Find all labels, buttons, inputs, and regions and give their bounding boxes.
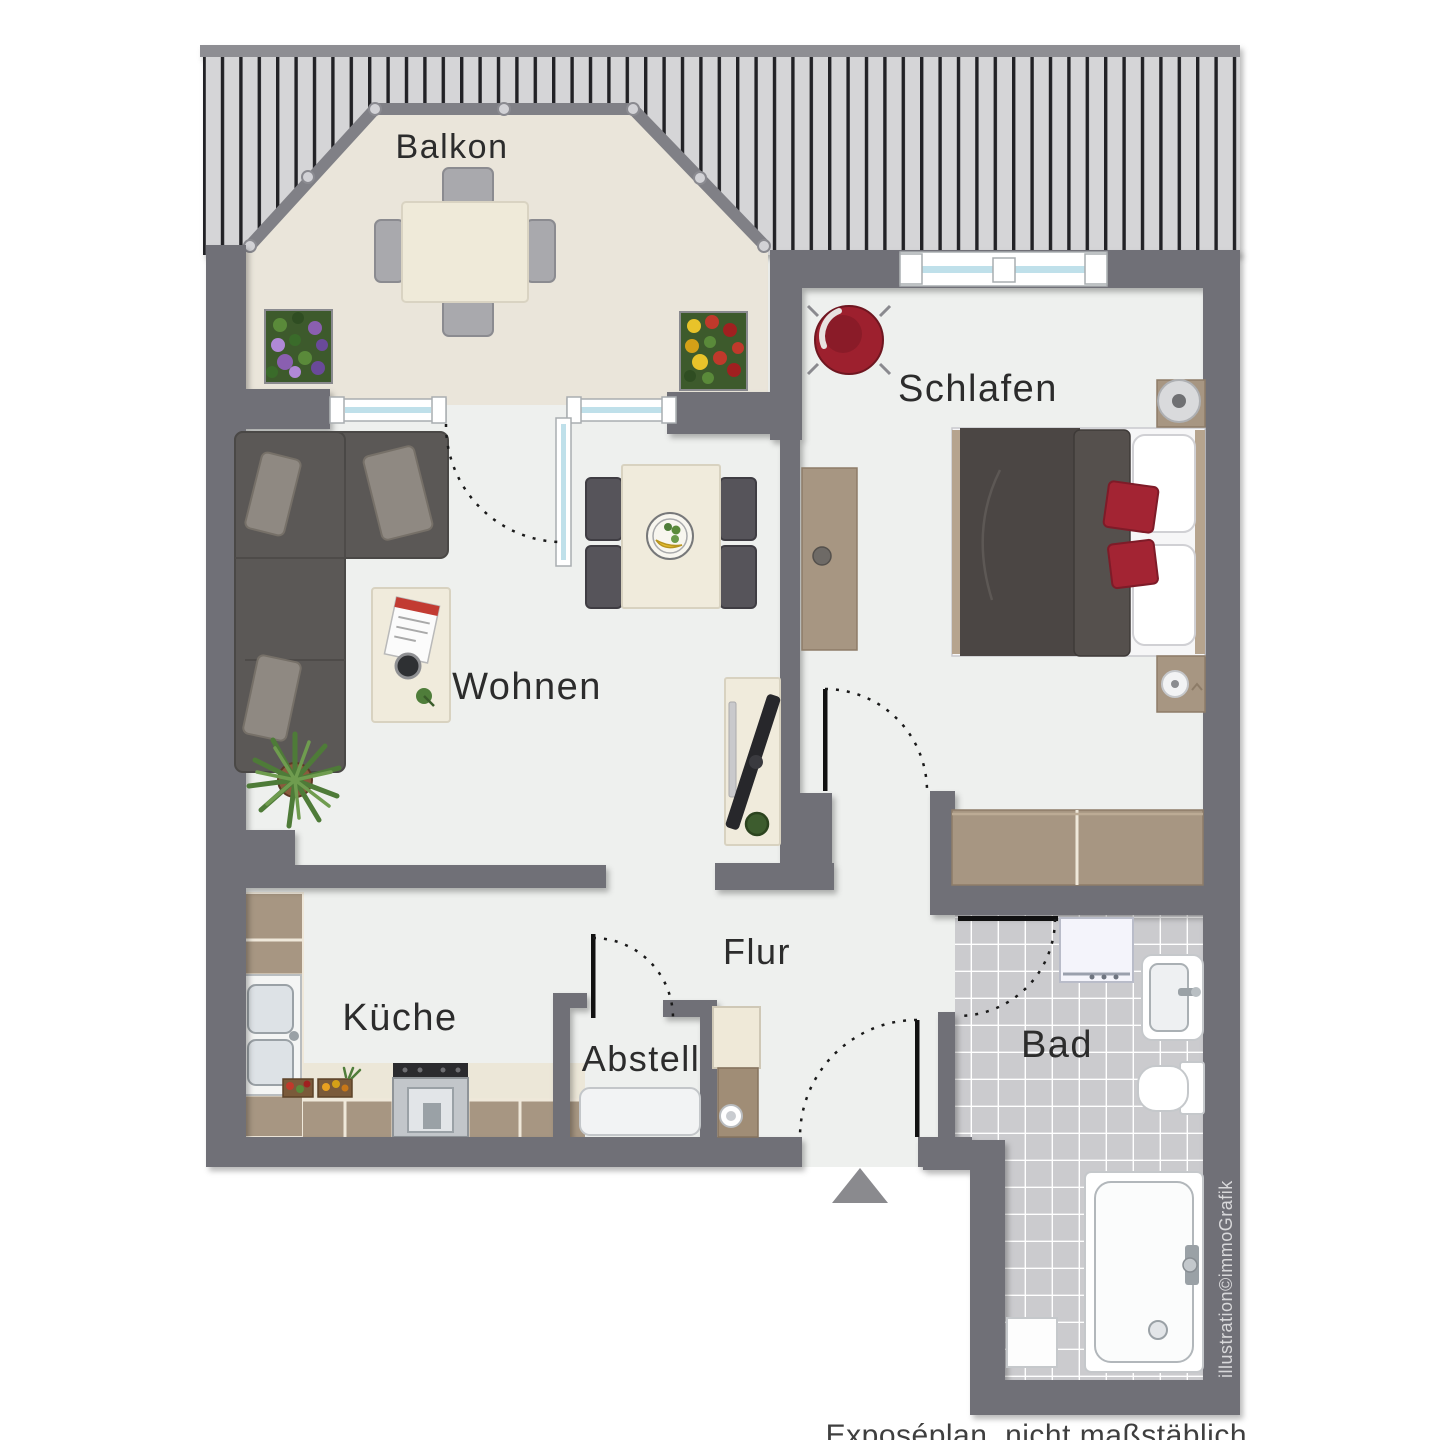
toilet-bowl xyxy=(1138,1066,1188,1111)
balcony-chair xyxy=(443,168,493,206)
wall-bedroom-bottom xyxy=(930,885,1240,915)
roof-ridge-bar xyxy=(200,45,1240,57)
coffee-table xyxy=(372,588,450,722)
wall-abstell-left-stub xyxy=(553,993,587,1008)
balcony-chair xyxy=(375,220,404,282)
label-kueche: Küche xyxy=(342,997,457,1039)
tub-faucet xyxy=(1183,1245,1199,1285)
abstell-door-leaf xyxy=(591,934,596,1018)
wall-bad-bottom xyxy=(970,1380,1240,1415)
faucet xyxy=(289,1031,299,1041)
window-glass xyxy=(580,407,663,413)
dining-chair xyxy=(720,478,756,540)
cup xyxy=(396,654,420,678)
washing-machine-abstell xyxy=(580,1088,700,1135)
wall-balconydoor-west xyxy=(206,389,330,429)
nightstand-bottom xyxy=(1157,656,1205,712)
bath-door-leaf xyxy=(958,916,1058,921)
wall-bad-left-mid xyxy=(938,1012,955,1140)
wall-wohnen-flur xyxy=(715,863,834,890)
keyboard xyxy=(729,702,736,797)
flower-box-right xyxy=(680,312,747,390)
balcony-table xyxy=(402,202,528,302)
dining-chair xyxy=(586,546,622,608)
wall-bad-left-bottom xyxy=(970,1170,1005,1415)
bathtub xyxy=(1085,1172,1203,1372)
dresser xyxy=(952,810,1203,885)
window-balcony-right xyxy=(567,397,676,423)
window-balcony-left xyxy=(330,397,446,423)
bed-headboard xyxy=(1195,430,1205,654)
accent-pillow xyxy=(1103,481,1159,534)
washing-machine-bad xyxy=(1060,918,1133,982)
accent-pillow xyxy=(1107,539,1158,588)
label-abstell: Abstell xyxy=(582,1038,701,1079)
wall-abstell-top-right xyxy=(663,1000,717,1017)
window-bedroom xyxy=(900,252,1107,286)
balcony-door-leaf xyxy=(556,418,571,566)
desk xyxy=(725,678,782,845)
kitchen-sink xyxy=(240,975,301,1095)
desk-plant xyxy=(746,813,768,835)
hall-cabinet xyxy=(713,1007,760,1137)
entrance-arrow xyxy=(832,1168,888,1203)
dining-chair xyxy=(586,478,622,540)
bath-cabinet xyxy=(1007,1318,1057,1367)
wall-kitchen-top xyxy=(232,865,606,888)
bathroom-sink xyxy=(1142,955,1203,1040)
nightstand-top xyxy=(1157,380,1205,427)
tub-drain xyxy=(1149,1321,1167,1339)
label-flur: Flur xyxy=(723,931,791,972)
bedroom-door-leaf xyxy=(823,689,828,791)
stove xyxy=(393,1063,468,1137)
floor-plan: Balkon Schlafen Wohnen Küche Abstell Flu… xyxy=(0,0,1440,1440)
wall-abstell-left xyxy=(553,993,570,1137)
toilet xyxy=(1138,1062,1204,1114)
balcony-chair xyxy=(526,220,555,282)
credit-text: illustration©immoGrafik xyxy=(1216,1180,1236,1378)
duvet xyxy=(960,428,1080,656)
wall-bad-jog xyxy=(923,1140,1005,1170)
disclaimer-text: Exposéplan, nicht maßstäblich xyxy=(826,1419,1247,1440)
label-balkon: Balkon xyxy=(396,128,509,166)
monitor-stand xyxy=(749,755,763,769)
entrance-door-leaf xyxy=(915,1020,920,1137)
label-wohnen: Wohnen xyxy=(452,666,602,708)
door-glass xyxy=(561,424,566,560)
bed xyxy=(952,428,1205,656)
wall-divider-wohnen-schlafen xyxy=(780,428,800,796)
label-schlafen: Schlafen xyxy=(898,368,1058,410)
sideboard-decor xyxy=(813,547,831,565)
window-glass xyxy=(345,407,431,413)
dining-chair xyxy=(720,546,756,608)
balcony-chair xyxy=(443,298,493,336)
wall-bottom-left xyxy=(206,1137,802,1167)
label-bad: Bad xyxy=(1021,1024,1093,1066)
dining-set xyxy=(586,465,756,608)
flower-box-left xyxy=(265,310,332,383)
fruit-bowl xyxy=(647,513,693,559)
floorplan-page: Balkon Schlafen Wohnen Küche Abstell Flu… xyxy=(0,0,1440,1440)
